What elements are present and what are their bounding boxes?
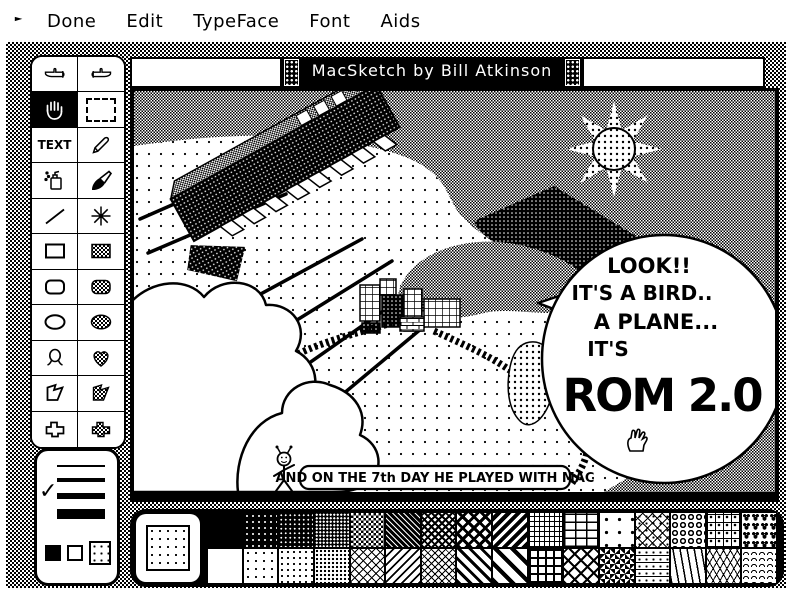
menu-items: DoneEditTypeFaceFontAids [47, 11, 451, 32]
tool-polygon[interactable] [32, 376, 78, 411]
tool-oval[interactable] [32, 305, 78, 340]
title-bar-center: MacSketch by Bill Atkinson [282, 57, 582, 88]
pattern-swatch-diag-thick[interactable] [457, 549, 491, 583]
pattern-swatch-bricks[interactable] [564, 513, 598, 547]
tool-palette: TEXT [30, 55, 126, 449]
caption-text: AND ON THE 7th DAY HE PLAYED WITH MAC [276, 471, 595, 486]
pattern-swatch-grid-fine[interactable] [529, 513, 563, 547]
window-title-bar[interactable]: MacSketch by Bill Atkinson [130, 57, 765, 88]
artwork: LOOK!! IT'S A BIRD.. A PLANE... IT'S ROM… [134, 91, 775, 492]
tool-rounded-rect[interactable] [32, 270, 78, 305]
pattern-swatch-dots-dense[interactable] [315, 549, 349, 583]
pattern-swatch-tri-dots[interactable] [636, 549, 670, 583]
tool-selection-marquee[interactable] [78, 92, 124, 127]
bubble-line-1: LOOK!! [607, 254, 691, 278]
line-width-panel: ✓ [34, 448, 120, 586]
bubble-line-2: IT'S A BIRD.. [572, 281, 713, 305]
tool-pencil[interactable] [78, 128, 124, 163]
tool-rectangle-filled[interactable] [78, 234, 124, 269]
sun-star [566, 101, 662, 197]
marquee-icon [86, 98, 116, 122]
tool-finger-left[interactable] [32, 57, 78, 92]
tool-paintbrush[interactable] [78, 163, 124, 198]
menu-item-done[interactable]: Done [47, 11, 96, 32]
title-ornament-right [565, 59, 580, 86]
pattern-swatch-grid-cross[interactable] [707, 513, 741, 547]
pattern-swatch-dots-sparse[interactable] [244, 549, 278, 583]
flag-icon[interactable] [12, 14, 27, 29]
tool-oval-filled[interactable] [78, 305, 124, 340]
pattern-palette [130, 509, 784, 587]
menu-item-edit[interactable]: Edit [126, 11, 163, 32]
line-width-option-3[interactable] [57, 493, 105, 499]
caption-box: AND ON THE 7th DAY HE PLAYED WITH MAC [276, 466, 595, 489]
fill-black-box[interactable] [45, 545, 61, 561]
pattern-swatch-white[interactable] [208, 549, 242, 583]
window-title: MacSketch by Bill Atkinson [301, 57, 563, 88]
pattern-swatch-crosshatch-dark[interactable] [422, 513, 456, 547]
pattern-swatch-invdots-dense[interactable] [315, 513, 349, 547]
tool-finger-right[interactable] [78, 57, 124, 92]
menu-item-aids[interactable]: Aids [380, 11, 420, 32]
line-width-option-4[interactable] [57, 509, 105, 519]
pattern-swatch-basket[interactable] [564, 549, 598, 583]
pattern-swatch-stripes-dark[interactable] [493, 513, 527, 547]
pattern-swatch-hearts[interactable] [742, 513, 776, 547]
macsketch-screen: DoneEditTypeFaceFontAids TEXT [0, 0, 800, 596]
pattern-swatch-black[interactable] [208, 513, 242, 547]
pattern-swatch-diamond-dots[interactable] [636, 513, 670, 547]
bubble-line-3: A PLANE... [594, 310, 718, 334]
line-width-option-1[interactable] [57, 465, 105, 467]
line-width-option-2[interactable] [57, 478, 105, 482]
tool-line[interactable] [32, 199, 78, 234]
selected-width-checkmark: ✓ [39, 479, 57, 504]
current-pattern [146, 525, 190, 571]
pattern-swatch-invdots-sparse[interactable] [244, 513, 278, 547]
pattern-swatch-lattice-dark[interactable] [457, 513, 491, 547]
title-bar-right-box[interactable] [582, 57, 765, 88]
tool-freeform[interactable] [32, 341, 78, 376]
pattern-swatch-zigzag[interactable] [600, 549, 634, 583]
pattern-swatch-dots-med[interactable] [279, 549, 313, 583]
pattern-swatch-rings[interactable] [671, 513, 705, 547]
pattern-grid [208, 513, 776, 583]
menu-item-typeface[interactable]: TypeFace [193, 11, 279, 32]
tool-shape[interactable] [32, 412, 78, 447]
pattern-swatch-waves[interactable] [671, 549, 705, 583]
bubble-line-5: ROM 2.0 [562, 369, 762, 422]
tool-rectangle[interactable] [32, 234, 78, 269]
pattern-swatch-checker-dark[interactable] [351, 513, 385, 547]
tool-heart-filled[interactable] [78, 341, 124, 376]
current-pattern-box [136, 514, 200, 582]
menu-bar: DoneEditTypeFaceFontAids [0, 0, 800, 42]
pattern-swatch-diamond-lattice[interactable] [351, 549, 385, 583]
tool-polygon-filled[interactable] [78, 376, 124, 411]
pattern-swatch-grid-panes[interactable] [529, 549, 563, 583]
pattern-swatch-crosshatch[interactable] [422, 549, 456, 583]
drawing-canvas[interactable]: LOOK!! IT'S A BIRD.. A PLANE... IT'S ROM… [130, 88, 779, 502]
pattern-swatch-dot-square[interactable] [600, 513, 634, 547]
pattern-swatch-diag-wide[interactable] [493, 549, 527, 583]
tool-star-burst[interactable] [78, 199, 124, 234]
fill-dotted-box[interactable] [89, 541, 111, 565]
tool-rounded-rect-filled[interactable] [78, 270, 124, 305]
title-bar-left-box[interactable] [130, 57, 282, 88]
pattern-swatch-diag-lines[interactable] [386, 549, 420, 583]
pattern-swatch-scales[interactable] [742, 549, 776, 583]
text-tool-label: TEXT [38, 138, 72, 152]
pattern-swatch-diag-dark[interactable] [386, 513, 420, 547]
tool-text[interactable]: TEXT [32, 128, 78, 163]
bubble-line-4: IT'S [587, 337, 629, 361]
menu-item-font[interactable]: Font [309, 11, 350, 32]
tool-spray-can[interactable] [32, 163, 78, 198]
pattern-swatch-tri-lattice[interactable] [707, 549, 741, 583]
pattern-swatch-invdots-med[interactable] [279, 513, 313, 547]
tool-grabber-hand[interactable] [32, 92, 78, 127]
fill-white-box[interactable] [67, 545, 83, 561]
title-ornament-left [284, 59, 299, 86]
tool-shape-filled[interactable] [78, 412, 124, 447]
